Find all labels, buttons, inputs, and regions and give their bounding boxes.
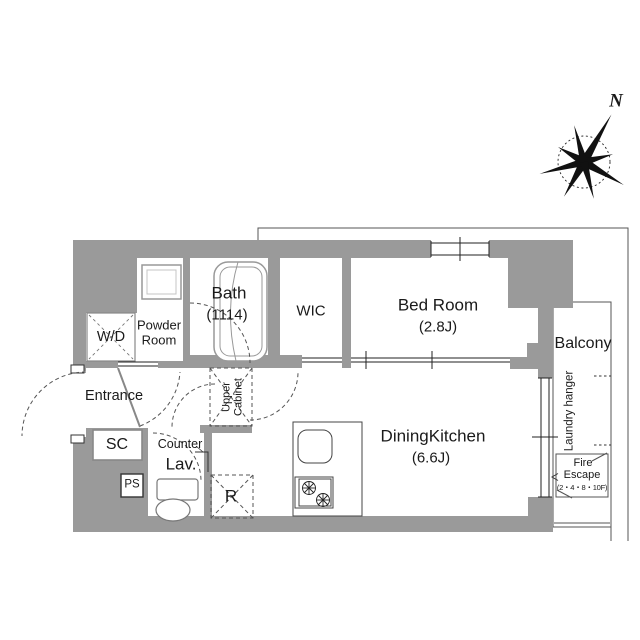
refrigerator-label: R — [225, 486, 237, 505]
wall — [73, 240, 431, 258]
balcony-label: Balcony — [555, 335, 612, 353]
bedroom-size-label: (2.8J) — [419, 320, 457, 337]
wall — [508, 258, 573, 308]
entrance-door-swing — [22, 372, 86, 436]
toilet-icon — [156, 479, 198, 521]
door-jamb — [71, 365, 84, 373]
lavatory-door-swing — [172, 384, 215, 427]
wic-label: WIC — [296, 304, 325, 321]
wall — [527, 343, 538, 358]
wall — [158, 361, 183, 368]
sink-cabinet-icon — [142, 265, 181, 299]
upper-cabinet-label: Upper Cabinet — [221, 373, 246, 421]
wall — [342, 258, 351, 368]
powder-room-label: Powder Room — [131, 318, 187, 347]
bedroom-label: Bed Room — [398, 295, 478, 314]
wall — [86, 361, 118, 368]
laundry-hanger-label: Laundry hanger — [564, 371, 577, 452]
wall — [489, 240, 573, 258]
floor-plan: Bath (1114) WIC Bed Room (2.8J) DiningKi… — [0, 0, 640, 640]
bath-size-label: (1114) — [206, 308, 247, 325]
wall — [538, 308, 553, 378]
wall — [528, 497, 553, 532]
bath-label: Bath — [212, 283, 247, 302]
dk-size-label: (6.6J) — [412, 451, 450, 468]
lavatory-label: Lav. — [166, 454, 197, 473]
wall — [86, 258, 137, 313]
fire-escape-label: Fire — [574, 457, 593, 469]
north-label: N — [609, 90, 623, 111]
pipe-space-label: PS — [124, 479, 139, 492]
shoe-cabinet-label: SC — [106, 436, 128, 454]
washer-dryer-label: W/D — [97, 329, 125, 345]
powder-door-swing — [140, 372, 180, 426]
wall — [132, 516, 528, 532]
hall-door-swing — [250, 372, 298, 420]
fire-escape-label2: Escape — [564, 469, 601, 481]
wall — [183, 258, 190, 368]
entrance-label: Entrance — [85, 388, 143, 404]
fire-escape-floors: (2・4・8・10F) — [557, 484, 607, 493]
kitchen-sink-icon — [298, 430, 332, 463]
wall — [268, 258, 280, 368]
counter-label: Counter — [158, 437, 202, 451]
dining-kitchen-label: DiningKitchen — [381, 426, 486, 445]
kitchen-counter-icon — [293, 422, 362, 516]
door-jamb — [71, 435, 84, 443]
wall — [73, 240, 86, 371]
